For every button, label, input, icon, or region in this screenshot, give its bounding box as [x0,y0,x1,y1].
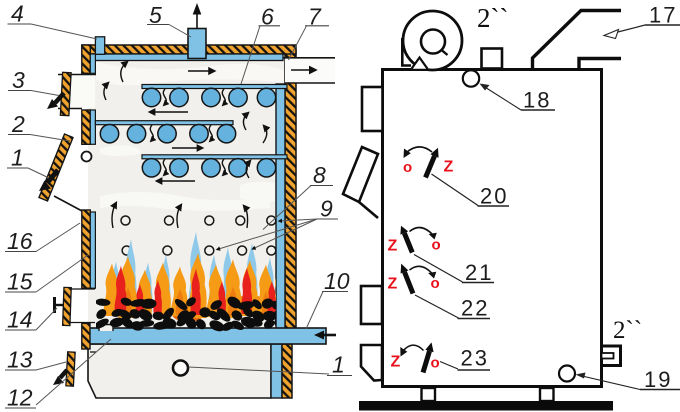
svg-text:20: 20 [480,184,508,209]
svg-text:o: o [431,355,440,372]
svg-text:2``: 2`` [477,3,508,33]
svg-text:3: 3 [12,67,25,93]
svg-text:10: 10 [324,268,350,294]
svg-text:Z: Z [388,276,398,293]
svg-text:12: 12 [7,385,33,411]
svg-text:23: 23 [461,346,489,371]
svg-text:13: 13 [7,347,33,373]
svg-text:9: 9 [320,196,333,222]
svg-text:18: 18 [523,88,551,113]
svg-text:1: 1 [332,352,345,378]
svg-text:19: 19 [644,367,672,392]
svg-text:o: o [403,159,412,176]
svg-text:1: 1 [11,145,24,171]
svg-text:17: 17 [649,3,677,28]
svg-text:2``: 2`` [613,317,642,344]
svg-text:o: o [432,237,441,254]
svg-text:4: 4 [11,1,24,27]
svg-text:o: o [431,275,440,292]
svg-text:Z: Z [388,238,398,255]
svg-text:16: 16 [7,228,33,254]
svg-text:21: 21 [465,260,493,285]
svg-text:8: 8 [313,162,326,188]
svg-text:22: 22 [461,296,489,321]
svg-text:14: 14 [7,307,33,333]
svg-text:Z: Z [391,354,401,371]
svg-text:2: 2 [11,111,25,137]
svg-text:Z: Z [444,159,454,176]
svg-text:15: 15 [7,269,33,295]
